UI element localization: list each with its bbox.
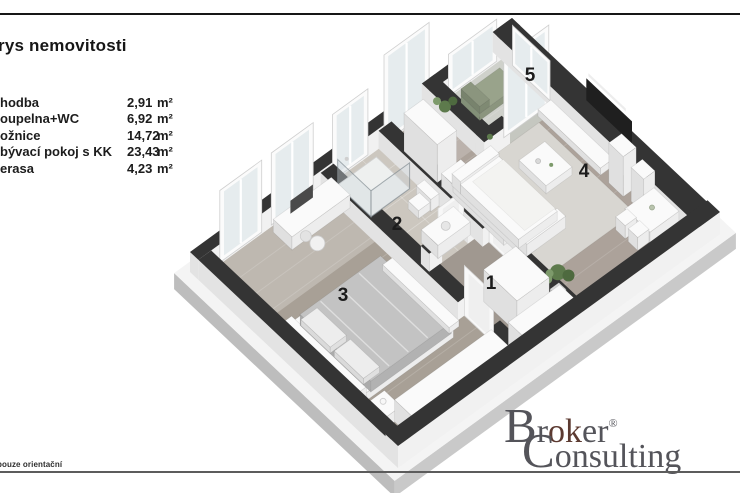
logo-line-consulting: Consulting — [522, 426, 681, 475]
terrace-plant — [487, 134, 493, 140]
bathroom-sink — [441, 221, 450, 230]
dining-vase — [650, 205, 655, 210]
plant-leaves — [563, 270, 575, 282]
room-number-label-3: 3 — [338, 285, 349, 306]
desk-chair-seat — [310, 236, 325, 251]
disclaimer-text: pouze orientační — [0, 460, 62, 469]
logo-letter-c: C — [522, 423, 555, 478]
bottom-border-line — [0, 471, 740, 473]
coffee-table-decor — [549, 163, 553, 167]
desk-chair-back — [300, 231, 311, 242]
floorplan-page: rys nemovitosti hodba 2,91 m² oupelna+WC… — [0, 0, 740, 493]
nightstand-lamp — [380, 398, 386, 404]
logo-text: onsulting — [555, 438, 682, 475]
shower-head — [345, 157, 349, 161]
plant-leaves — [448, 97, 457, 106]
coffee-table-decor — [536, 159, 541, 164]
broker-consulting-logo: Broker® Consulting — [504, 401, 732, 477]
room-number-label-5: 5 — [525, 65, 536, 86]
room-number-label-2: 2 — [392, 214, 403, 235]
plant-leaves — [433, 97, 441, 105]
room-number-label-1: 1 — [486, 273, 497, 294]
room-number-label-4: 4 — [579, 161, 590, 182]
